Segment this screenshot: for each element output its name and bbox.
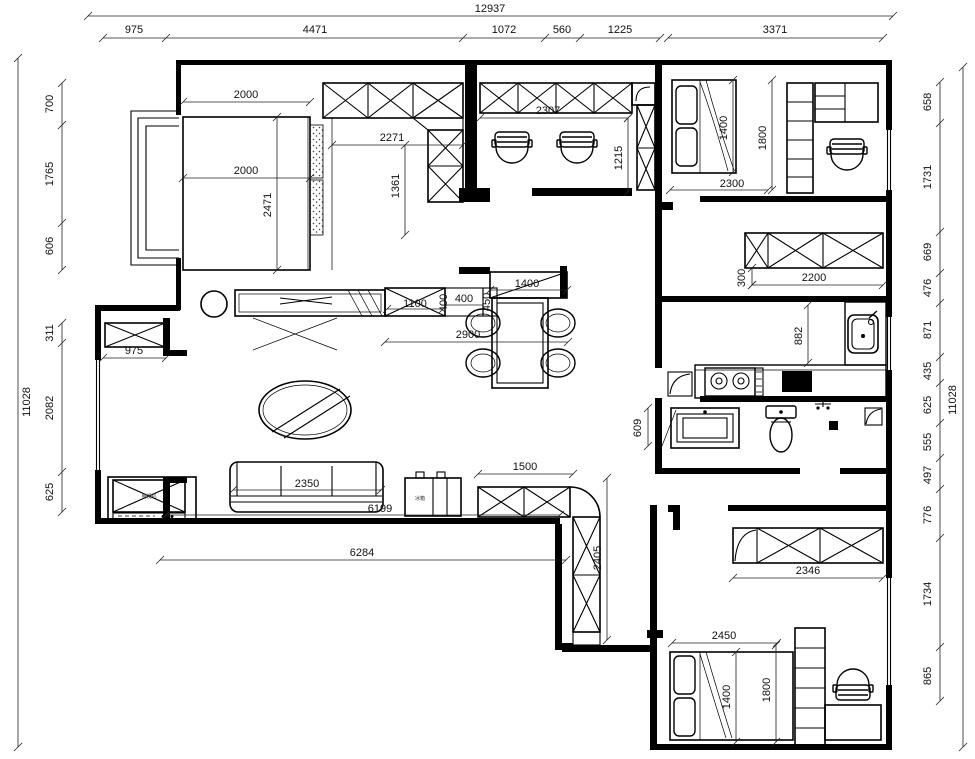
dim-label: 2271	[380, 132, 404, 144]
dim-label: 871	[922, 321, 934, 339]
dim: 1215	[613, 114, 632, 196]
dim-label: 1215	[613, 146, 625, 170]
dim-label: 2450	[712, 630, 736, 642]
desk2	[815, 83, 878, 122]
dim-label: 975	[125, 24, 143, 36]
shower-mixer	[815, 401, 831, 410]
dim: 2000	[179, 89, 314, 106]
dim-top-chain: 975 4471 1072 560 1225 3371	[99, 24, 887, 42]
dim-label: 1400	[515, 278, 539, 290]
dim-label: 658	[922, 93, 934, 111]
dim-label: 555	[922, 433, 934, 451]
dim-label: 975	[125, 345, 143, 357]
bathroom	[662, 401, 882, 452]
kitchen-window	[886, 317, 892, 370]
study-furniture	[480, 83, 655, 190]
bedroom2-furniture	[672, 80, 878, 193]
dim: 2350	[229, 478, 385, 494]
entry-door-swing	[253, 318, 337, 350]
dim: 1500	[474, 461, 577, 478]
dim-label: 1072	[492, 24, 516, 36]
dim-label: 450	[481, 293, 493, 311]
floor-plan-canvas: 电视机 冰箱	[0, 0, 975, 759]
kitchen-counter-east	[845, 302, 886, 365]
dim: 2346	[729, 565, 887, 582]
dim: 1361	[390, 141, 409, 239]
dim-label: 12937	[475, 3, 506, 15]
dim-label: 1500	[513, 461, 537, 473]
bedroom3-furniture	[670, 528, 883, 746]
dim: 1800	[761, 641, 780, 746]
kitchen-sink	[848, 311, 878, 353]
desk3	[825, 705, 881, 740]
vanity-sink	[671, 408, 739, 448]
desk-chair	[492, 132, 532, 163]
entry-living-dining: 电视机 冰箱	[105, 272, 600, 645]
dim-label: 476	[922, 279, 934, 297]
dim-label: 1731	[922, 165, 934, 189]
dim: 1400	[718, 76, 737, 176]
fridge-label: 冰箱	[415, 495, 425, 502]
dim-label: 1734	[922, 582, 934, 606]
entry-console	[235, 290, 385, 316]
dim: 2200	[748, 272, 887, 289]
dim-label: 2200	[802, 272, 826, 284]
dim-label: 497	[922, 466, 934, 484]
floor-drain-kitchen	[668, 372, 692, 396]
coffee-table	[259, 381, 351, 439]
dim-label: 606	[44, 237, 56, 255]
dim-label: 400	[438, 294, 450, 312]
bath-door-leaf	[662, 410, 676, 446]
bedroom2-window	[886, 130, 892, 190]
dim: 400	[438, 294, 450, 312]
dim-label: 882	[793, 327, 805, 345]
floor-plan-drawing: 电视机 冰箱	[0, 0, 975, 759]
bed1	[183, 117, 310, 270]
dim-label: 6199	[368, 503, 392, 515]
dim-label: 4471	[303, 24, 327, 36]
dim-label: 2350	[295, 478, 319, 490]
dim: 2471	[262, 113, 281, 274]
dim-label: 2307	[536, 105, 560, 117]
dim-label: 2346	[796, 565, 820, 577]
dim-label: 865	[922, 667, 934, 685]
dim-label: 776	[922, 506, 934, 524]
ladder-shelf2	[787, 83, 813, 193]
corner-cabinet-hall	[478, 487, 600, 645]
dim-label: 2471	[262, 193, 274, 217]
dim: 6284	[156, 547, 570, 564]
dim-label: 2000	[234, 89, 258, 101]
dim-label: 1800	[761, 678, 773, 702]
dim: 609	[632, 404, 652, 450]
dim-label: 2405	[592, 546, 604, 570]
dim: 882	[793, 301, 812, 367]
interior-dimensions: 2000 2000 2471 2271 1361 2307 1215 1400 …	[99, 76, 887, 746]
dim: 2450	[668, 630, 781, 647]
dim: 450	[481, 293, 493, 311]
dim-right-total: 11028	[947, 63, 967, 751]
dim-label: 11028	[21, 387, 33, 417]
dim-label: 669	[922, 243, 934, 261]
dim-label: 560	[553, 24, 571, 36]
dim-label: 1361	[390, 174, 402, 198]
corner-drain	[865, 408, 882, 425]
dim-label: 2300	[720, 178, 744, 190]
toilet	[766, 406, 796, 452]
dim-label: 400	[455, 293, 473, 305]
dimension-chains: 12937 975 4471 1072 560 1225 3371 11028 …	[14, 3, 967, 751]
dim: 2300	[666, 178, 772, 194]
dim: 2000	[179, 165, 314, 182]
dim-label: 1765	[44, 162, 56, 186]
cooktop	[705, 368, 763, 396]
wardrobe3	[733, 528, 883, 563]
dim-label: 1800	[757, 126, 769, 150]
desk-chair	[557, 132, 597, 163]
dim-label: 625	[44, 483, 56, 501]
desk-chair	[827, 139, 867, 170]
dim-label: 6284	[350, 547, 374, 559]
dim-label: 625	[922, 396, 934, 414]
dim-left-total: 11028	[14, 54, 33, 751]
dim-label: 11028	[947, 385, 959, 415]
hall-cabinet	[745, 233, 883, 268]
dim-label: 1225	[608, 24, 632, 36]
dim-label: 1400	[718, 116, 730, 140]
dim-label: 3371	[763, 24, 787, 36]
dim-label: 1100	[403, 298, 427, 310]
dim-label: 609	[632, 419, 644, 437]
tv-label: 电视机	[141, 493, 156, 500]
dim: 1400	[486, 278, 571, 294]
bedroom3-window	[886, 578, 892, 685]
dim-label: 435	[922, 362, 934, 380]
dim-left-chain: 700 1765 606 311 2082 625	[44, 79, 66, 516]
dim: 2271	[328, 132, 467, 149]
entry-x-cabinet	[105, 323, 165, 347]
dim-label: 2900	[456, 329, 480, 341]
wardrobe-strip	[310, 180, 323, 235]
floor-drain-black	[829, 421, 838, 430]
bay-window	[131, 111, 179, 265]
dim-right-chain: 658 1731 669 476 871 435 625 555 497 776…	[922, 78, 944, 705]
fridge: 冰箱	[405, 472, 461, 516]
living-window	[95, 360, 101, 470]
dim-label: 700	[44, 95, 56, 113]
dim: 1800	[757, 76, 776, 194]
dim: 400	[445, 293, 483, 305]
ladder-shelf3	[795, 628, 825, 746]
dim-label: 300	[736, 269, 748, 287]
walls	[95, 60, 892, 750]
dim-label: 311	[44, 324, 56, 342]
entry-stool	[201, 291, 227, 317]
appliance-black	[782, 371, 812, 392]
kitchen	[668, 302, 886, 398]
dim-label: 1400	[721, 685, 733, 709]
dim-label: 2000	[234, 165, 258, 177]
dim-top-total: 12937	[84, 3, 897, 20]
wardrobe-strip	[310, 125, 323, 178]
dim-label: 2082	[44, 396, 56, 420]
bedroom1-furniture	[183, 83, 463, 270]
desk-chair	[833, 669, 873, 700]
